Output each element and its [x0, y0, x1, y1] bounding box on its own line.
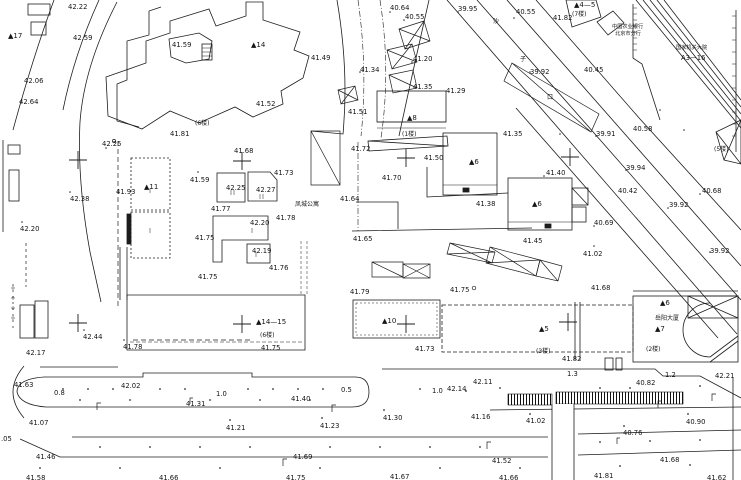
name-label: (7楼)	[572, 10, 587, 18]
elevation-label: 41.68	[660, 456, 679, 464]
elevation-label: A3—16	[681, 54, 705, 62]
elevation-label: 42.17	[26, 349, 45, 357]
elevation-label: 42.27	[256, 186, 275, 194]
elevation-label: 42.14	[447, 385, 466, 393]
building-number-label: ▲4—5	[574, 1, 595, 9]
elevation-label: 41.23	[320, 422, 339, 430]
elevation-label: 41.40	[291, 395, 310, 403]
grid-cross	[69, 151, 87, 169]
elevation-label: 42.44	[83, 333, 102, 341]
elevation-label: 41.69	[293, 453, 312, 461]
elevation-label: 41.75	[450, 286, 469, 294]
name-label: (2楼)	[646, 345, 661, 353]
elevation-label: 41.58	[26, 474, 45, 480]
elevation-label: 40.82	[636, 379, 655, 387]
elevation-label: 42.21	[715, 372, 734, 380]
elevation-label: 41.81	[594, 472, 613, 480]
elevation-label: 41.73	[415, 345, 434, 353]
elevation-label: 41.49	[311, 54, 330, 62]
width-dimension-label: 1.0	[432, 387, 443, 395]
elevation-label: 40.45	[584, 66, 603, 74]
elevation-label: 42.06	[24, 77, 43, 85]
elevation-label: 40.42	[618, 187, 637, 195]
elevation-label: 41.66	[159, 474, 178, 480]
elevation-label: 42.20	[20, 225, 39, 233]
grid-cross	[397, 149, 415, 167]
name-label: (6楼)	[260, 331, 275, 339]
elevation-label: 41.59	[172, 41, 191, 49]
elevation-label: 41.78	[276, 214, 295, 222]
elevation-label: 41.35	[503, 130, 522, 138]
elevation-label: 41.51	[348, 108, 367, 116]
building-number-label: ▲6	[660, 299, 670, 307]
elevation-label: 39.95	[458, 5, 477, 13]
elevation-label: 42.38	[70, 195, 89, 203]
elevation-label: 42.11	[473, 378, 492, 386]
elevation-label: 41.29	[446, 87, 465, 95]
elevation-label: 41.75	[261, 344, 280, 352]
width-dimension-label: 1.3	[567, 370, 578, 378]
elevation-label: 39.94	[626, 164, 645, 172]
width-dimension-label: 0.5	[341, 386, 352, 394]
elevation-label: 40.69	[594, 219, 613, 227]
elevation-label: 39.92	[669, 201, 688, 209]
elevation-label: 41.68	[234, 147, 253, 155]
grid-cross	[559, 313, 577, 331]
elevation-label: 41.34	[360, 66, 379, 74]
elevation-label: 41.77	[211, 205, 230, 213]
name-label: 口	[547, 94, 553, 101]
name-label: 子	[520, 56, 526, 63]
elevation-label: 42.25	[102, 140, 121, 148]
elevation-label: 41.50	[424, 154, 443, 162]
elevation-label: 41.46	[36, 453, 55, 461]
elevation-label: .05	[1, 435, 12, 443]
name-label: 沙	[493, 18, 499, 25]
elevation-label: 39.92	[530, 68, 549, 76]
building-number-label: ▲7	[655, 325, 665, 333]
elevation-label: 40.55	[516, 8, 535, 16]
building-number-label: ▲10	[382, 317, 396, 325]
elevation-label: 41.68	[591, 284, 610, 292]
elevation-label: 41.70	[382, 174, 401, 182]
building-number-label: ▲5	[539, 325, 549, 333]
elevation-label: 41.82	[553, 14, 572, 22]
elevation-label: 41.72	[351, 145, 370, 153]
elevation-label: 42.59	[73, 34, 92, 42]
building-outlines	[3, 0, 741, 362]
elevation-label: 41.62	[707, 474, 726, 480]
elevation-label: 42.25	[226, 184, 245, 192]
elevation-label: 39.92	[710, 247, 729, 255]
elevation-label: 41.45	[523, 237, 542, 245]
grid-cross	[233, 315, 251, 333]
elevation-label: 41.07	[29, 419, 48, 427]
elevation-label: 40.68	[702, 187, 721, 195]
site-plan-canvas: 42.2242.59▲1741.5942.0642.64▲1441.4941.5…	[0, 0, 741, 480]
elevation-label: 41.20	[413, 55, 432, 63]
name-label: (5楼)	[714, 145, 729, 153]
name-label: 岳阳大厦	[655, 314, 679, 322]
elevation-label: 41.30	[383, 414, 402, 422]
elevation-label: 41.38	[476, 200, 495, 208]
elevation-label: 40.64	[390, 4, 409, 12]
elevation-label: 41.93	[116, 188, 135, 196]
elevation-label: 41.66	[499, 474, 518, 480]
elevation-label: 41.75	[198, 273, 217, 281]
building-number-label: ▲6	[532, 200, 542, 208]
name-label: (1楼)	[402, 130, 417, 138]
elevation-label: 40.76	[623, 429, 642, 437]
elevation-label: 41.59	[190, 176, 209, 184]
elevation-label: 41.21	[226, 424, 245, 432]
elevation-label: 41.31	[186, 400, 205, 408]
elevation-label: 41.52	[492, 457, 511, 465]
elevation-label: 39.91	[596, 130, 615, 138]
elevation-label: 41.52	[256, 100, 275, 108]
width-dimension-label: 0.8	[54, 389, 65, 397]
elevation-label: 41.82	[562, 355, 581, 363]
crosswalk-hatch	[508, 392, 683, 405]
elevation-label: 41.35	[413, 83, 432, 91]
elevation-label: 41.75	[286, 474, 305, 480]
elevation-label: 41.78	[123, 343, 142, 351]
grid-cross	[561, 148, 579, 166]
width-dimension-label: 1.0	[216, 390, 227, 398]
width-dimension-label: 1.2	[665, 371, 676, 379]
elevation-label: 42.64	[19, 98, 38, 106]
elevation-label: 41.81	[170, 130, 189, 138]
elevation-label: 41.75	[195, 234, 214, 242]
elevation-label: 40.55	[405, 13, 424, 21]
name-label: (6楼)	[195, 119, 210, 127]
elevation-label: 41.76	[269, 264, 288, 272]
elevation-label: 42.22	[68, 3, 87, 11]
survey-site-plan: 42.2242.59▲1741.5942.0642.64▲1441.4941.5…	[0, 0, 741, 480]
elevation-label: 41.79	[350, 288, 369, 296]
name-label: (3楼)	[536, 347, 551, 355]
elevation-label: 41.64	[340, 195, 359, 203]
building-number-label: ▲14—15	[256, 318, 286, 326]
grid-cross	[397, 315, 415, 333]
elevation-label: 41.02	[583, 250, 602, 258]
name-label: 国家机关大院	[676, 43, 708, 51]
parcel-boundaries	[12, 4, 736, 340]
elevation-label: 42.20	[250, 219, 269, 227]
elevation-label: 40.58	[633, 125, 652, 133]
building-number-label: ▲6	[469, 158, 479, 166]
elevation-label: 41.02	[526, 417, 545, 425]
building-number-label: ▲8	[407, 114, 417, 122]
side-road-south	[552, 358, 622, 480]
elevation-label: 41.73	[274, 169, 293, 177]
building-number-label: ▲11	[144, 183, 158, 191]
elevation-label: 41.40	[546, 169, 565, 177]
building-number-label: ▲17	[8, 32, 22, 40]
elevation-label: 41.65	[353, 235, 372, 243]
elevation-label: 42.02	[121, 382, 140, 390]
name-label: 中国农业银行	[612, 22, 643, 30]
name-label: 北京市分行	[615, 29, 641, 37]
elevation-label: 40.90	[686, 418, 705, 426]
elevation-label: 41.63	[14, 381, 33, 389]
name-label: 凤城公寓	[295, 200, 319, 208]
elevation-label: 42.19	[252, 247, 271, 255]
elevation-label: 41.16	[471, 413, 490, 421]
building-number-label: ▲14	[251, 41, 266, 49]
elevation-label: 41.67	[390, 473, 409, 480]
